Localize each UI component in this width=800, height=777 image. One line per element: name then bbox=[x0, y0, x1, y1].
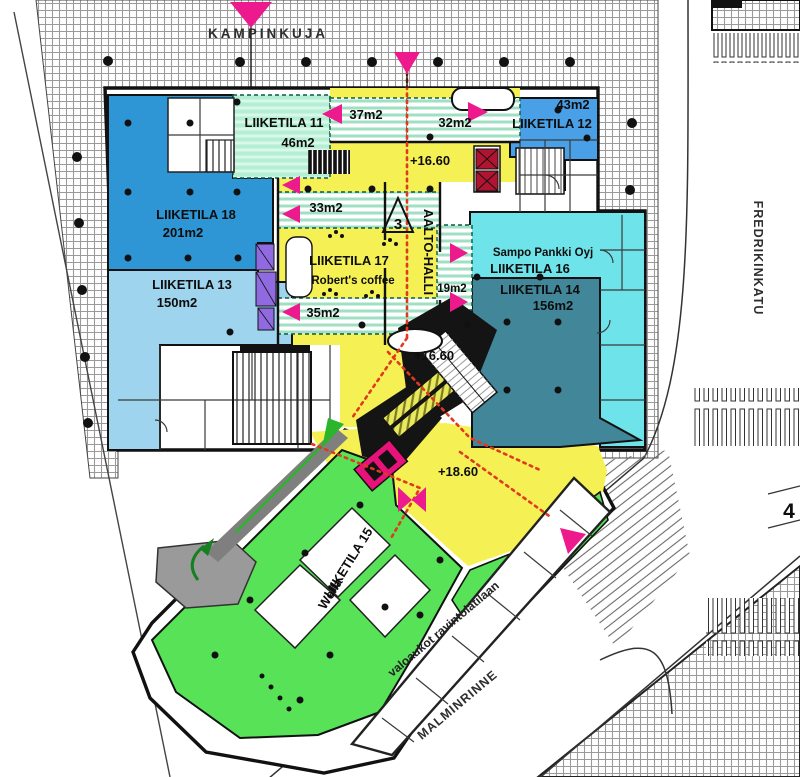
section-marker-number: 3 bbox=[394, 216, 402, 233]
room-label-liiketila-17: LIIKETILA 17 bbox=[309, 253, 389, 268]
hall-label-aalto-halli: AALTO-HALLI bbox=[421, 209, 436, 295]
room-area-liiketila-13: 150m2 bbox=[157, 295, 197, 310]
crosswalk-markings bbox=[694, 33, 800, 656]
shaft-area-33: 33m2 bbox=[309, 200, 342, 215]
elevator-shafts-purple bbox=[256, 244, 276, 330]
tenant-liiketila-17: Robert's coffee bbox=[311, 275, 394, 287]
room-area-liiketila-12: 43m2 bbox=[556, 97, 589, 112]
room-area-liiketila-14: 156m2 bbox=[533, 298, 573, 313]
shaft-area-19: 19m2 bbox=[437, 283, 466, 295]
level-mark-lower: +18.60 bbox=[438, 464, 478, 479]
tenant-liiketila-16: Sampo Pankki Oyj bbox=[493, 247, 593, 259]
street-label-fredrikinkatu: FREDRIKINKATU bbox=[751, 201, 765, 316]
floor-plan-svg: KAMPINKUJA FREDRIKINKATU MALMINRINNE val… bbox=[0, 0, 800, 777]
room-label-liiketila-16: LIIKETILA 16 bbox=[490, 261, 570, 276]
auditorium-seating bbox=[233, 345, 311, 444]
level-mark-upper: +16.60 bbox=[410, 153, 450, 168]
elevator-red-boxes bbox=[474, 146, 500, 192]
shaft-area-35: 35m2 bbox=[306, 305, 339, 320]
room-label-liiketila-12: LIIKETILA 12 bbox=[512, 116, 592, 131]
room-label-liiketila-11: LIIKETILA 11 bbox=[245, 115, 324, 130]
room-label-liiketila-14: LIIKETILA 14 bbox=[500, 282, 580, 297]
room-label-liiketila-18: LIIKETILA 18 bbox=[156, 207, 236, 222]
room-label-liiketila-13: LIIKETILA 13 bbox=[152, 277, 232, 292]
shaft-area-37: 37m2 bbox=[349, 107, 382, 122]
street-label-kampinkuja: KAMPINKUJA bbox=[208, 26, 328, 41]
room-area-liiketila-18: 201m2 bbox=[163, 225, 203, 240]
room-area-liiketila-11: 46m2 bbox=[281, 135, 314, 150]
level-mark-mid: +16.60 bbox=[414, 348, 454, 363]
edge-marker-4: 4 bbox=[783, 500, 795, 523]
floor-plan-canvas: KAMPINKUJA FREDRIKINKATU MALMINRINNE val… bbox=[0, 0, 800, 777]
shaft-area-32: 32m2 bbox=[438, 115, 471, 130]
